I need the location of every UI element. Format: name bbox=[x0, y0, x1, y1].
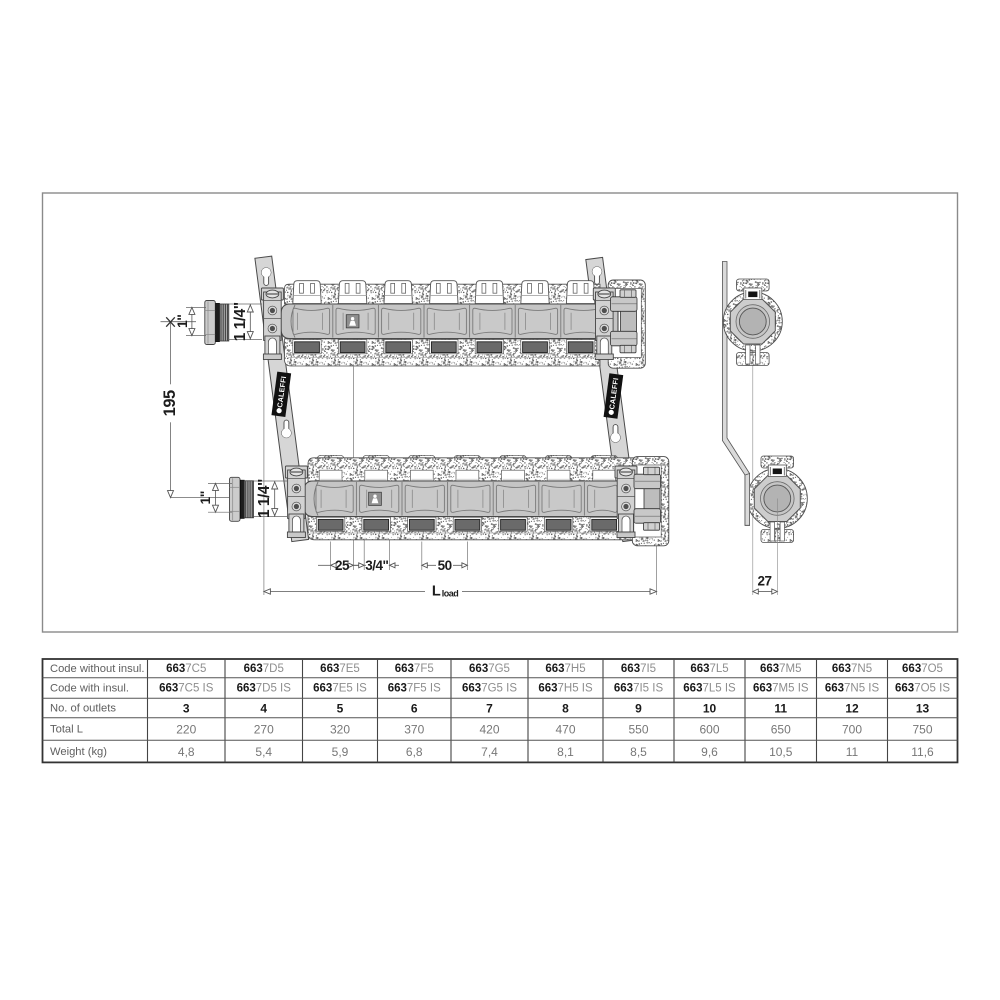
svg-text:12: 12 bbox=[845, 702, 859, 716]
svg-text:8,5: 8,5 bbox=[630, 745, 647, 759]
svg-text:No. of outlets: No. of outlets bbox=[50, 703, 116, 715]
svg-text:7: 7 bbox=[486, 702, 493, 716]
svg-text:700: 700 bbox=[842, 723, 862, 737]
svg-text:370: 370 bbox=[404, 723, 424, 737]
svg-text:4: 4 bbox=[260, 702, 267, 716]
svg-text:750: 750 bbox=[912, 723, 932, 737]
svg-text:13: 13 bbox=[916, 702, 930, 716]
svg-text:6637L5: 6637L5 bbox=[690, 663, 728, 675]
svg-text:6637M5 IS: 6637M5 IS bbox=[753, 683, 809, 695]
svg-text:7,4: 7,4 bbox=[481, 745, 498, 759]
svg-text:1": 1" bbox=[197, 491, 213, 504]
svg-text:470: 470 bbox=[555, 723, 575, 737]
svg-text:6637O5: 6637O5 bbox=[902, 663, 943, 675]
svg-text:27: 27 bbox=[757, 574, 771, 589]
svg-text:Code with insul.: Code with insul. bbox=[50, 683, 129, 695]
svg-text:6637M5: 6637M5 bbox=[760, 663, 802, 675]
svg-text:6637H5: 6637H5 bbox=[545, 663, 585, 675]
svg-text:6637C5: 6637C5 bbox=[166, 663, 206, 675]
svg-text:3: 3 bbox=[183, 702, 190, 716]
svg-text:600: 600 bbox=[699, 723, 719, 737]
svg-text:6637I5 IS: 6637I5 IS bbox=[614, 683, 664, 695]
svg-text:8: 8 bbox=[562, 702, 569, 716]
svg-text:L: L bbox=[432, 584, 441, 600]
svg-text:11,6: 11,6 bbox=[911, 745, 934, 759]
svg-text:6637N5: 6637N5 bbox=[832, 663, 872, 675]
svg-text:9: 9 bbox=[635, 702, 642, 716]
svg-text:1 1/4": 1 1/4" bbox=[256, 479, 273, 518]
svg-text:11: 11 bbox=[846, 745, 859, 759]
svg-text:6637D5 IS: 6637D5 IS bbox=[237, 683, 292, 695]
svg-text:320: 320 bbox=[330, 723, 350, 737]
svg-text:11: 11 bbox=[774, 702, 787, 716]
svg-text:Code without insul.: Code without insul. bbox=[50, 663, 145, 675]
svg-text:6: 6 bbox=[411, 702, 418, 716]
svg-text:550: 550 bbox=[628, 723, 648, 737]
svg-text:50: 50 bbox=[438, 558, 452, 573]
svg-text:650: 650 bbox=[771, 723, 791, 737]
svg-text:6637F5 IS: 6637F5 IS bbox=[388, 683, 441, 695]
svg-text:6637D5: 6637D5 bbox=[244, 663, 284, 675]
svg-text:6637E5: 6637E5 bbox=[320, 663, 360, 675]
svg-text:195: 195 bbox=[161, 390, 179, 416]
svg-text:6637H5 IS: 6637H5 IS bbox=[538, 683, 593, 695]
svg-text:load: load bbox=[442, 589, 459, 599]
svg-text:6637O5 IS: 6637O5 IS bbox=[895, 683, 950, 695]
svg-text:6637G5: 6637G5 bbox=[469, 663, 510, 675]
svg-text:420: 420 bbox=[479, 723, 499, 737]
svg-text:6637I5: 6637I5 bbox=[621, 663, 656, 675]
svg-text:6637C5 IS: 6637C5 IS bbox=[159, 683, 214, 695]
svg-text:9,6: 9,6 bbox=[701, 745, 718, 759]
svg-text:6637N5 IS: 6637N5 IS bbox=[825, 683, 880, 695]
svg-text:6637E5 IS: 6637E5 IS bbox=[313, 683, 367, 695]
svg-text:4,8: 4,8 bbox=[178, 745, 195, 759]
svg-text:270: 270 bbox=[254, 723, 274, 737]
svg-text:6,8: 6,8 bbox=[406, 745, 423, 759]
svg-text:3/4": 3/4" bbox=[365, 558, 388, 573]
svg-text:8,1: 8,1 bbox=[557, 745, 574, 759]
svg-text:5,4: 5,4 bbox=[255, 745, 272, 759]
svg-text:6637F5: 6637F5 bbox=[395, 663, 434, 675]
svg-text:Weight (kg): Weight (kg) bbox=[50, 746, 107, 758]
svg-text:Total L: Total L bbox=[50, 724, 83, 736]
svg-text:10,5: 10,5 bbox=[769, 745, 793, 759]
svg-text:6637L5 IS: 6637L5 IS bbox=[683, 683, 736, 695]
svg-text:25: 25 bbox=[335, 558, 350, 573]
svg-text:10: 10 bbox=[703, 702, 717, 716]
svg-text:5: 5 bbox=[337, 702, 344, 716]
svg-text:6637G5 IS: 6637G5 IS bbox=[462, 683, 517, 695]
svg-text:1 1/4": 1 1/4" bbox=[232, 302, 249, 341]
svg-text:220: 220 bbox=[176, 723, 196, 737]
svg-text:1": 1" bbox=[174, 315, 190, 328]
svg-text:5,9: 5,9 bbox=[332, 745, 349, 759]
